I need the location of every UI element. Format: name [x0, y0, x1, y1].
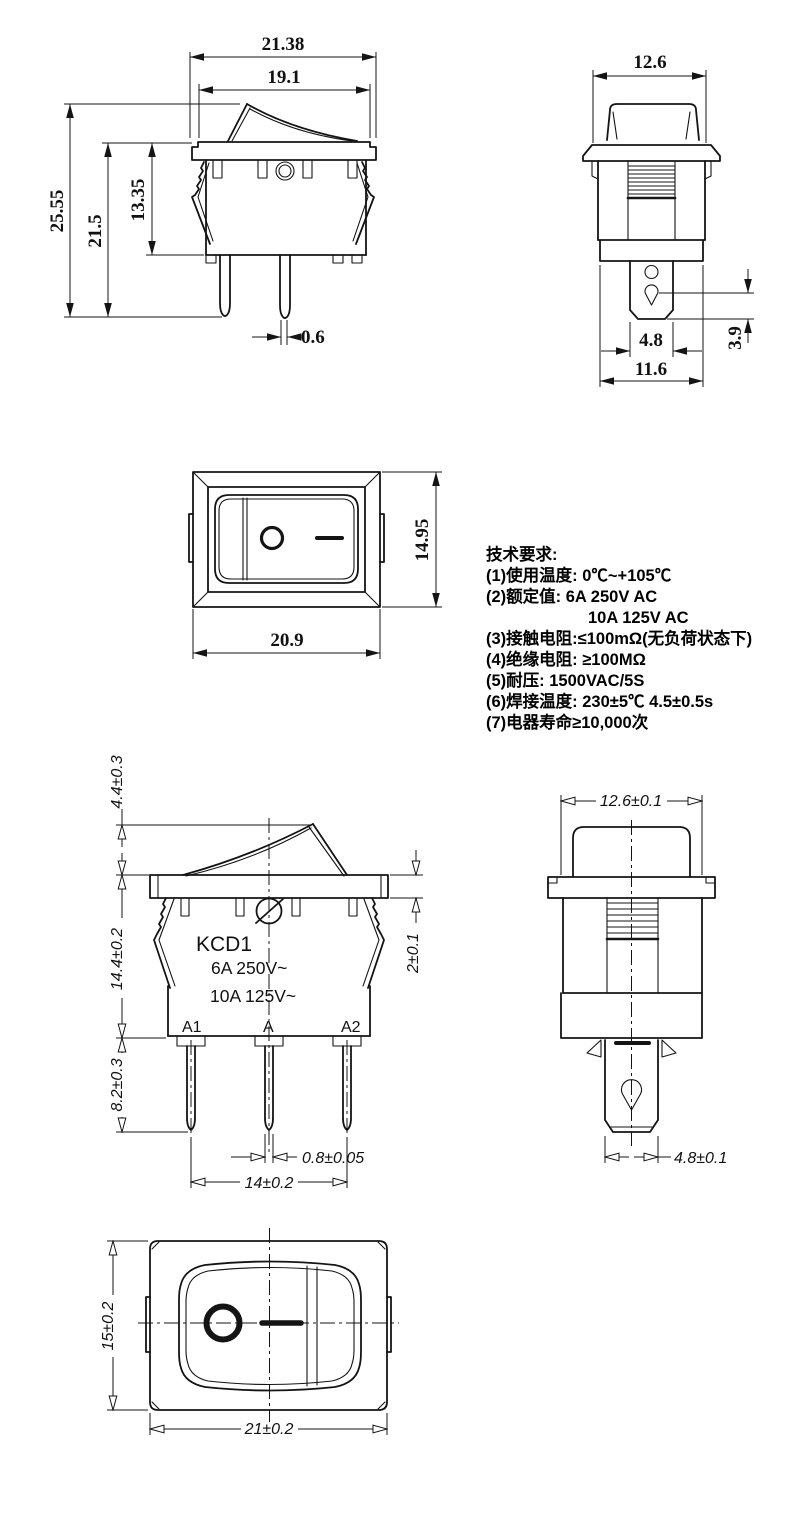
dim-lower-body-height: 14.4±0.2 [109, 928, 126, 990]
dim-hole-to-tip: 3.9 [725, 326, 746, 350]
dim-lower-pin-thickness: 0.8±0.05 [302, 1150, 364, 1167]
view-top-middle: 14.95 20.9 [189, 472, 442, 659]
dim-bottom-height: 15±0.2 [100, 1301, 117, 1350]
symbol-off-circle [262, 528, 283, 549]
top-middle-dimensions [193, 472, 442, 659]
rating-label-2: 10A 125V~ [210, 986, 296, 1006]
dim-terminal-width: 4.8 [639, 330, 663, 351]
technical-drawing-canvas: 21.38 19.1 25.55 21.5 13.35 0.6 [0, 0, 800, 1513]
top-bottom-outline [146, 1241, 391, 1410]
note-line: (3)接触电阻:≤100mΩ(无负荷状态下) [486, 629, 798, 650]
dim-body-height: 13.35 [128, 179, 149, 222]
dim-base-width: 11.6 [635, 359, 667, 380]
dim-top-height: 14.95 [412, 519, 433, 562]
dim-rocker-width: 19.1 [267, 67, 300, 88]
top-bottom-dimensions [107, 1241, 387, 1435]
dim-bottom-width: 21±0.2 [244, 1421, 294, 1438]
dim-flange-thickness: 2±0.1 [405, 933, 422, 974]
note-line: (4)绝缘电阻: ≥100MΩ [486, 650, 798, 671]
note-line: (7)电器寿命≥10,000次 [486, 713, 798, 734]
terminal-label-a1: A1 [182, 1019, 202, 1036]
dim-top-width: 20.9 [270, 630, 303, 651]
side-upper-outline [583, 104, 720, 319]
rocker-switch-drawing: 21.38 19.1 25.55 21.5 13.35 0.6 [0, 0, 800, 1513]
terminal-label-a2: A2 [341, 1019, 361, 1036]
terminal-label-a: A [263, 1019, 274, 1036]
dim-side-lower-width: 12.6±0.1 [600, 793, 662, 810]
dim-side-width: 12.6 [633, 52, 666, 73]
view-side-upper: 12.6 4.8 3.9 11.6 [583, 52, 754, 387]
view-front-upper: 21.38 19.1 25.55 21.5 13.35 0.6 [47, 34, 376, 348]
dim-pin-thickness: 0.6 [301, 327, 325, 348]
note-line: (5)耐压: 1500VAC/5S [486, 671, 798, 692]
note-line: 10A 125V AC [588, 608, 798, 629]
dim-height-flange-to-pin: 21.5 [85, 214, 106, 247]
view-top-bottom: 15±0.2 21±0.2 [100, 1228, 399, 1438]
front-upper-outline [192, 104, 376, 318]
model-label: KCD1 [196, 933, 252, 956]
note-line: (6)焊接温度: 230±5℃ 4.5±0.5s [486, 692, 798, 713]
dim-pin-length: 8.2±0.3 [109, 1058, 126, 1111]
top-middle-outline [189, 472, 384, 607]
note-line: (1)使用温度: 0℃~+105℃ [486, 566, 798, 587]
dim-pin-pitch: 14±0.2 [245, 1175, 294, 1192]
view-front-lower: KCD1 6A 250V~ 10A 125V~ A1 A A2 4.4±0.3 … [109, 755, 423, 1192]
dim-side-lower-terminal-width: 4.8±0.1 [674, 1150, 727, 1167]
dim-rocker-height: 4.4±0.3 [109, 755, 126, 808]
technical-requirements: 技术要求: (1)使用温度: 0℃~+105℃ (2)额定值: 6A 250V … [486, 545, 798, 734]
view-side-lower: 12.6±0.1 4.8±0.1 [548, 793, 727, 1167]
rating-label-1: 6A 250V~ [211, 958, 287, 978]
note-line: (2)额定值: 6A 250V AC [486, 587, 798, 608]
notes-title: 技术要求: [486, 545, 798, 566]
dim-total-height: 25.55 [47, 190, 68, 233]
dim-overall-width: 21.38 [262, 34, 305, 55]
